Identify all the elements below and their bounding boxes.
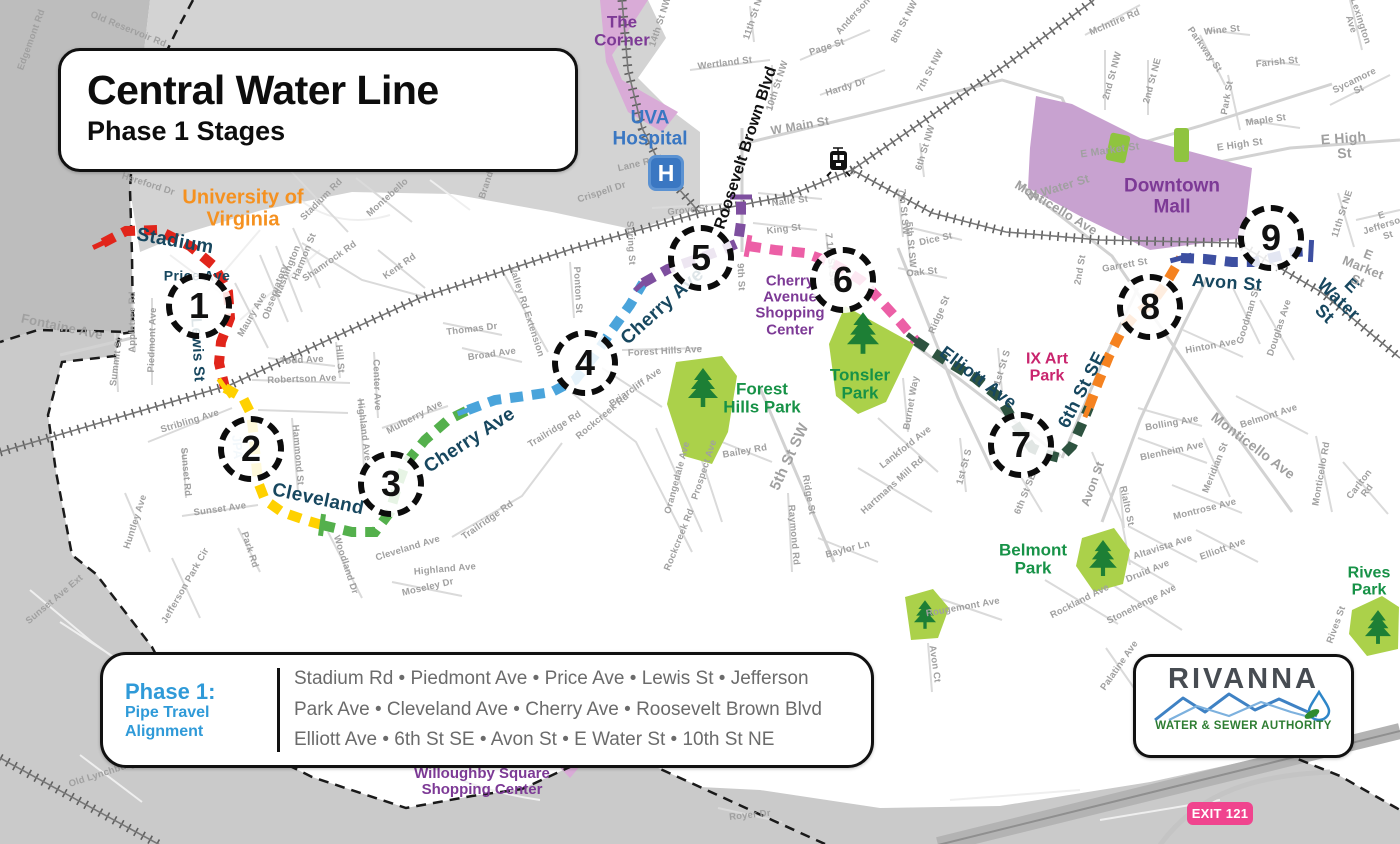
rivanna-logo-panel: RIVANNA WATER & SEWER AUTHORITY xyxy=(1133,654,1354,758)
legend-divider xyxy=(277,668,280,752)
central-water-line-map: StadiumPrice AveLewis StClevelandCherry … xyxy=(0,0,1400,844)
route-stage-1 xyxy=(103,230,230,388)
map-subtitle: Phase 1 Stages xyxy=(87,116,549,147)
legend-street-line: Stadium Rd • Piedmont Ave • Price Ave • … xyxy=(294,664,857,695)
legend-street-list: Stadium Rd • Piedmont Ave • Price Ave • … xyxy=(294,664,871,756)
legend-sub-label-1: Pipe Travel xyxy=(125,704,273,722)
route-end-cap xyxy=(730,195,752,200)
route-end-cap xyxy=(1308,240,1314,262)
route-stage-8 xyxy=(1089,258,1181,407)
logo-wordmark: RIVANNA xyxy=(1136,665,1351,694)
route-stage-7 xyxy=(916,341,1089,458)
route-stage-9 xyxy=(1181,251,1311,262)
legend-panel: Phase 1: Pipe Travel Alignment Stadium R… xyxy=(100,652,874,768)
route-stage-5 xyxy=(643,197,741,283)
legend-sub-label-2: Alignment xyxy=(125,723,273,741)
title-panel: Central Water Line Phase 1 Stages xyxy=(58,48,578,172)
route-stage-6 xyxy=(748,246,916,341)
logo-tagline: WATER & SEWER AUTHORITY xyxy=(1136,720,1351,732)
hospital-icon-letter: H xyxy=(658,160,675,187)
route-stage-3 xyxy=(322,410,468,532)
route-stage-2 xyxy=(225,388,322,525)
legend-street-line: Elliott Ave • 6th St SE • Avon St • E Wa… xyxy=(294,725,857,756)
hospital-icon: H xyxy=(648,155,684,191)
legend-street-line: Park Ave • Cleveland Ave • Cherry Ave • … xyxy=(294,695,857,726)
legend-phase-block: Phase 1: Pipe Travel Alignment xyxy=(103,679,273,741)
route-stage-4 xyxy=(468,283,643,410)
map-title: Central Water Line xyxy=(87,67,549,114)
exit-121-badge: EXIT 121 xyxy=(1187,802,1253,825)
legend-phase-label: Phase 1: xyxy=(125,679,273,704)
